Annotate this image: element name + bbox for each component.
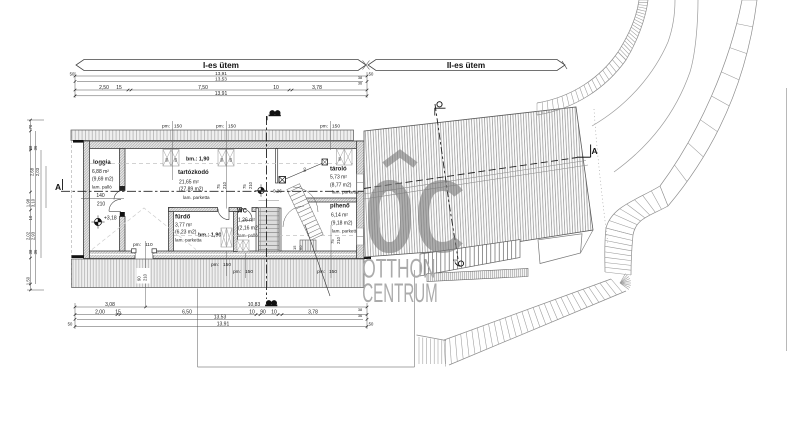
svg-text:75: 75 bbox=[242, 184, 247, 189]
svg-text:140: 140 bbox=[96, 193, 105, 199]
svg-text:60: 60 bbox=[174, 158, 178, 162]
svg-text:210: 210 bbox=[248, 181, 253, 189]
svg-text:210: 210 bbox=[97, 202, 106, 208]
svg-text:pm:: pm: bbox=[216, 125, 224, 130]
svg-text:2,00: 2,00 bbox=[95, 310, 105, 316]
svg-text:210: 210 bbox=[336, 236, 341, 244]
svg-text:50: 50 bbox=[68, 321, 73, 326]
svg-text:150: 150 bbox=[174, 124, 182, 130]
svg-text:90: 90 bbox=[137, 276, 142, 281]
svg-text:loggia: loggia bbox=[93, 160, 111, 166]
svg-text:pm:: pm: bbox=[317, 270, 325, 275]
svg-text:6,88 m²: 6,88 m² bbox=[92, 169, 109, 175]
svg-text:3,10: 3,10 bbox=[31, 198, 36, 207]
svg-text:21,65 m²: 21,65 m² bbox=[179, 180, 199, 186]
svg-text:15: 15 bbox=[115, 310, 121, 316]
svg-text:10: 10 bbox=[28, 215, 33, 220]
svg-text:10: 10 bbox=[273, 85, 279, 91]
svg-text:90: 90 bbox=[220, 158, 224, 162]
svg-text:pm:: pm: bbox=[233, 270, 241, 275]
svg-text:pm:: pm: bbox=[162, 125, 170, 130]
svg-text:pm:: pm: bbox=[211, 263, 219, 268]
svg-text:lam. parketta: lam. parketta bbox=[332, 190, 359, 195]
svg-text:90: 90 bbox=[165, 158, 169, 162]
svg-text:pm:: pm: bbox=[320, 125, 328, 130]
svg-text:15: 15 bbox=[292, 245, 297, 250]
svg-text:lam. palló: lam. palló bbox=[238, 233, 258, 238]
svg-text:36: 36 bbox=[358, 82, 362, 86]
svg-text:38: 38 bbox=[358, 76, 362, 80]
svg-text:36: 36 bbox=[33, 145, 38, 150]
svg-text:13,53: 13,53 bbox=[215, 77, 227, 82]
svg-text:50: 50 bbox=[70, 72, 75, 77]
svg-text:(9,69 m2): (9,69 m2) bbox=[92, 177, 114, 183]
svg-text:CENTRUM: CENTRUM bbox=[362, 279, 438, 309]
svg-text:3,77 m²: 3,77 m² bbox=[175, 223, 192, 229]
svg-text:10,83: 10,83 bbox=[248, 302, 261, 308]
svg-text:II-es ütem: II-es ütem bbox=[447, 61, 485, 70]
svg-text:pihenő: pihenő bbox=[330, 204, 350, 210]
svg-text:2,68: 2,68 bbox=[30, 167, 35, 176]
svg-text:60: 60 bbox=[229, 158, 233, 162]
svg-text:36: 36 bbox=[33, 249, 38, 254]
svg-text:2,50: 2,50 bbox=[99, 85, 109, 91]
svg-text:I-es ütem: I-es ütem bbox=[203, 61, 239, 70]
svg-text:lam. parketta: lam. parketta bbox=[332, 229, 359, 234]
svg-text:50: 50 bbox=[369, 72, 374, 77]
svg-text:5,73 m²: 5,73 m² bbox=[330, 175, 347, 181]
svg-text:6,50: 6,50 bbox=[182, 310, 192, 316]
svg-text:90: 90 bbox=[302, 167, 307, 172]
svg-text:(2,16 m2): (2,16 m2) bbox=[238, 226, 260, 232]
svg-text:60: 60 bbox=[298, 245, 303, 250]
svg-text:150: 150 bbox=[228, 124, 236, 130]
svg-text:(6,23 m2): (6,23 m2) bbox=[175, 230, 197, 236]
svg-text:tároló: tároló bbox=[330, 167, 347, 173]
svg-text:3,08: 3,08 bbox=[105, 302, 115, 308]
svg-text:fürdő: fürdő bbox=[175, 215, 191, 221]
svg-text:6,14 m²: 6,14 m² bbox=[331, 213, 348, 219]
svg-text:13,53: 13,53 bbox=[214, 314, 227, 320]
svg-text:13,91: 13,91 bbox=[217, 322, 230, 328]
svg-text:tartózkodó: tartózkodó bbox=[178, 170, 209, 176]
svg-text:7,50: 7,50 bbox=[198, 85, 208, 91]
svg-text:15: 15 bbox=[116, 85, 122, 91]
svg-text:pm:: pm: bbox=[133, 243, 141, 248]
svg-text:lam. palló: lam. palló bbox=[92, 185, 112, 190]
svg-text:70: 70 bbox=[28, 124, 33, 129]
svg-text:90: 90 bbox=[260, 310, 266, 316]
svg-text:(8,77 m2): (8,77 m2) bbox=[330, 183, 352, 189]
svg-text:bm.: 1,90: bm.: 1,90 bbox=[186, 157, 209, 163]
svg-text:2,03: 2,03 bbox=[35, 167, 40, 176]
svg-text:36: 36 bbox=[358, 314, 362, 318]
svg-text:150: 150 bbox=[329, 269, 337, 275]
svg-text:1,50: 1,50 bbox=[26, 276, 31, 285]
svg-text:(9,18 m2): (9,18 m2) bbox=[331, 221, 353, 227]
svg-text:A: A bbox=[592, 146, 598, 156]
svg-text:10: 10 bbox=[271, 310, 277, 316]
svg-text:150: 150 bbox=[223, 262, 231, 268]
svg-text:50: 50 bbox=[369, 321, 374, 326]
svg-text:75: 75 bbox=[216, 184, 221, 189]
svg-text:3,78: 3,78 bbox=[308, 310, 318, 316]
svg-text:+3,18: +3,18 bbox=[104, 216, 117, 222]
svg-text:90: 90 bbox=[338, 157, 342, 161]
svg-text:A: A bbox=[55, 182, 61, 192]
svg-text:2,93: 2,93 bbox=[31, 231, 36, 240]
svg-text:10: 10 bbox=[249, 310, 255, 316]
svg-text:13,91: 13,91 bbox=[215, 91, 228, 97]
svg-text:3,78: 3,78 bbox=[312, 85, 322, 91]
svg-text:150: 150 bbox=[245, 269, 253, 275]
svg-text:150: 150 bbox=[332, 124, 340, 130]
svg-text:110: 110 bbox=[145, 242, 153, 248]
svg-text:210: 210 bbox=[143, 273, 148, 281]
svg-text:13,91: 13,91 bbox=[215, 71, 227, 76]
svg-text:lam. parketta: lam. parketta bbox=[183, 195, 210, 200]
